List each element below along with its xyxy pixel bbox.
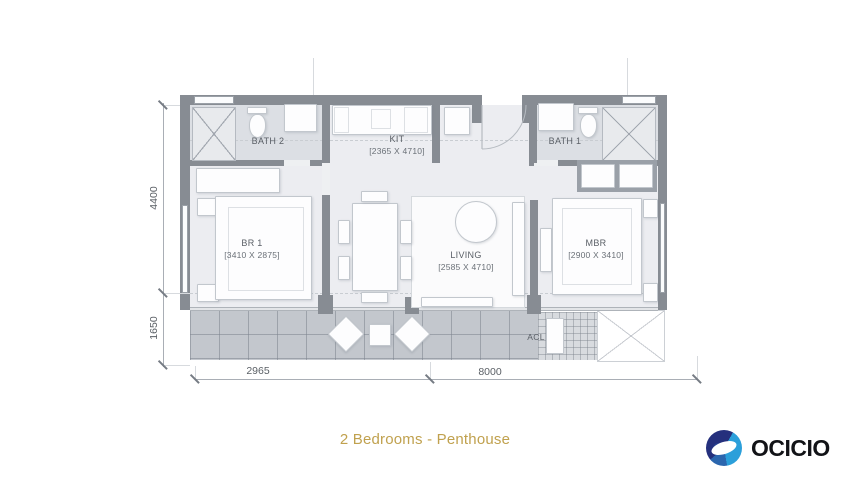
vanity-bath2 (284, 104, 317, 132)
toilet-bath1 (580, 114, 597, 138)
dim-8000-value: 8000 (478, 366, 501, 378)
wardrobe-mbr-door-1 (581, 164, 615, 188)
acl-name: ACL (527, 332, 544, 342)
bath1-name: BATH 1 (549, 136, 582, 146)
mbr-name: MBR (586, 238, 607, 248)
dim-label-4400: 4400 (148, 178, 160, 218)
sofa-seat (421, 297, 493, 307)
nightstand-mbr-top (643, 199, 658, 218)
dining-chair-bottom (361, 292, 388, 303)
living-name: LIVING (450, 250, 481, 260)
wardrobe-mbr-door-2 (619, 164, 653, 188)
extension-line-top-2 (627, 58, 628, 95)
br1-door-opening (322, 163, 330, 195)
dining-chair-top (361, 191, 388, 202)
bath2-name: BATH 2 (252, 136, 285, 146)
fridge (444, 107, 470, 135)
dim-label-1650: 1650 (148, 308, 160, 348)
ext-left-2 (165, 293, 190, 294)
dresser-mbr (540, 228, 552, 272)
dining-table (352, 203, 398, 291)
dim-4400-value: 4400 (148, 186, 160, 209)
kitchen-hob (404, 107, 428, 133)
window-bath2 (194, 96, 234, 104)
dim-line-bottom (195, 379, 697, 380)
extension-line-top-1 (313, 58, 314, 95)
terrace-table (369, 324, 391, 346)
room-label-bath1: BATH 1 (533, 136, 597, 148)
bath1-door-opening (534, 160, 558, 166)
ext-left-1 (165, 105, 180, 106)
plan-title-text: 2 Bedrooms - Penthouse (340, 431, 510, 448)
room-label-mbr: MBR [2900 X 3410] (556, 238, 636, 261)
room-label-acl: ACL (516, 332, 556, 343)
room-label-bath2: BATH 2 (236, 136, 300, 148)
terrace-floor (190, 310, 538, 360)
dining-chair-right-2 (400, 256, 412, 280)
room-label-kit: KIT [2365 X 4710] (357, 134, 437, 157)
pillar-3 (527, 295, 541, 314)
dining-chair-left-1 (338, 220, 350, 244)
wall-br1-living (322, 105, 330, 303)
shower-bath1 (602, 107, 656, 161)
kit-name: KIT (390, 134, 405, 144)
wardrobe-br1 (196, 168, 280, 193)
bath2-door-opening (284, 160, 310, 166)
kitchen-sink (371, 109, 391, 129)
dim-label-8000: 8000 (460, 366, 520, 378)
dining-chair-right-1 (400, 220, 412, 244)
window-bath1 (622, 96, 656, 104)
brand-logo-icon (706, 430, 742, 466)
window-br1 (182, 205, 188, 293)
floor-plan-slide: BATH 2 KIT [2365 X 4710] BATH 1 BR 1 [34… (0, 0, 850, 478)
toilet-bath2 (249, 114, 266, 138)
coffee-table (455, 201, 497, 243)
top-wall (180, 95, 667, 105)
dining-chair-left-2 (338, 256, 350, 280)
brand-logo: OCICIO (706, 430, 830, 466)
brand-logo-text: OCICIO (751, 435, 830, 462)
br1-dims: [3410 X 2875] (212, 250, 292, 261)
logo-swoosh-shape (710, 438, 738, 457)
void-area (597, 310, 665, 362)
nightstand-mbr-bottom (643, 283, 658, 302)
mbr-dims: [2900 X 3410] (556, 250, 636, 261)
room-label-living: LIVING [2585 X 4710] (426, 250, 506, 273)
wall-living-mbr (530, 200, 538, 303)
shower-bath2 (192, 107, 236, 161)
vanity-bath1 (538, 103, 574, 131)
dim-2965-value: 2965 (246, 365, 269, 377)
ext-left-3 (165, 365, 190, 366)
kit-dims: [2365 X 4710] (357, 146, 437, 157)
dim-line-left (163, 103, 164, 367)
br1-name: BR 1 (241, 238, 262, 248)
living-dims: [2585 X 4710] (426, 262, 506, 273)
toilet-tank-bath1 (578, 107, 598, 114)
ext-bottom-3 (697, 356, 698, 380)
dim-1650-value: 1650 (148, 316, 160, 339)
kitchen-strip (334, 107, 349, 133)
toilet-tank-bath2 (247, 107, 267, 114)
dim-label-2965: 2965 (228, 365, 288, 377)
entry-door-arc (480, 103, 528, 151)
window-mbr (660, 203, 665, 293)
room-label-br1: BR 1 [3410 X 2875] (212, 238, 292, 261)
pillar-1 (318, 295, 333, 314)
sofa-back (512, 202, 525, 296)
